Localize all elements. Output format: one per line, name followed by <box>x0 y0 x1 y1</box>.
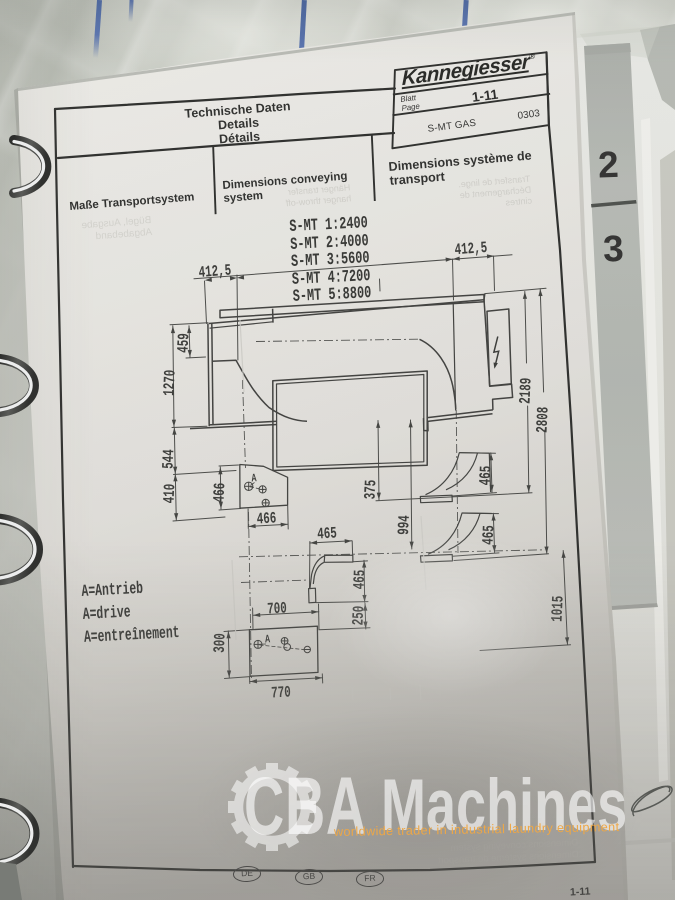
svg-text:466: 466 <box>212 482 230 502</box>
svg-text:1270: 1270 <box>162 369 181 396</box>
svg-text:465: 465 <box>352 569 370 589</box>
svg-text:465: 465 <box>317 526 338 545</box>
svg-text:700: 700 <box>267 601 288 620</box>
svg-text:300: 300 <box>212 633 230 653</box>
svg-text:375: 375 <box>363 479 381 499</box>
svg-text:412,5: 412,5 <box>454 240 488 260</box>
svg-text:770: 770 <box>271 685 292 700</box>
svg-text:412,5: 412,5 <box>198 263 232 283</box>
svg-text:2189: 2189 <box>518 377 537 404</box>
svg-text:544: 544 <box>161 449 179 469</box>
svg-text:994: 994 <box>396 515 414 535</box>
svg-text:A: A <box>264 632 270 645</box>
svg-text:459: 459 <box>176 333 194 353</box>
svg-text:1015: 1015 <box>550 595 569 622</box>
svg-text:410: 410 <box>162 483 180 503</box>
svg-text:465: 465 <box>478 465 496 485</box>
svg-text:466: 466 <box>256 511 277 530</box>
svg-text:2808: 2808 <box>535 406 554 433</box>
svg-text:465: 465 <box>481 525 499 545</box>
svg-text:250: 250 <box>351 605 369 625</box>
svg-text:A: A <box>251 471 257 484</box>
